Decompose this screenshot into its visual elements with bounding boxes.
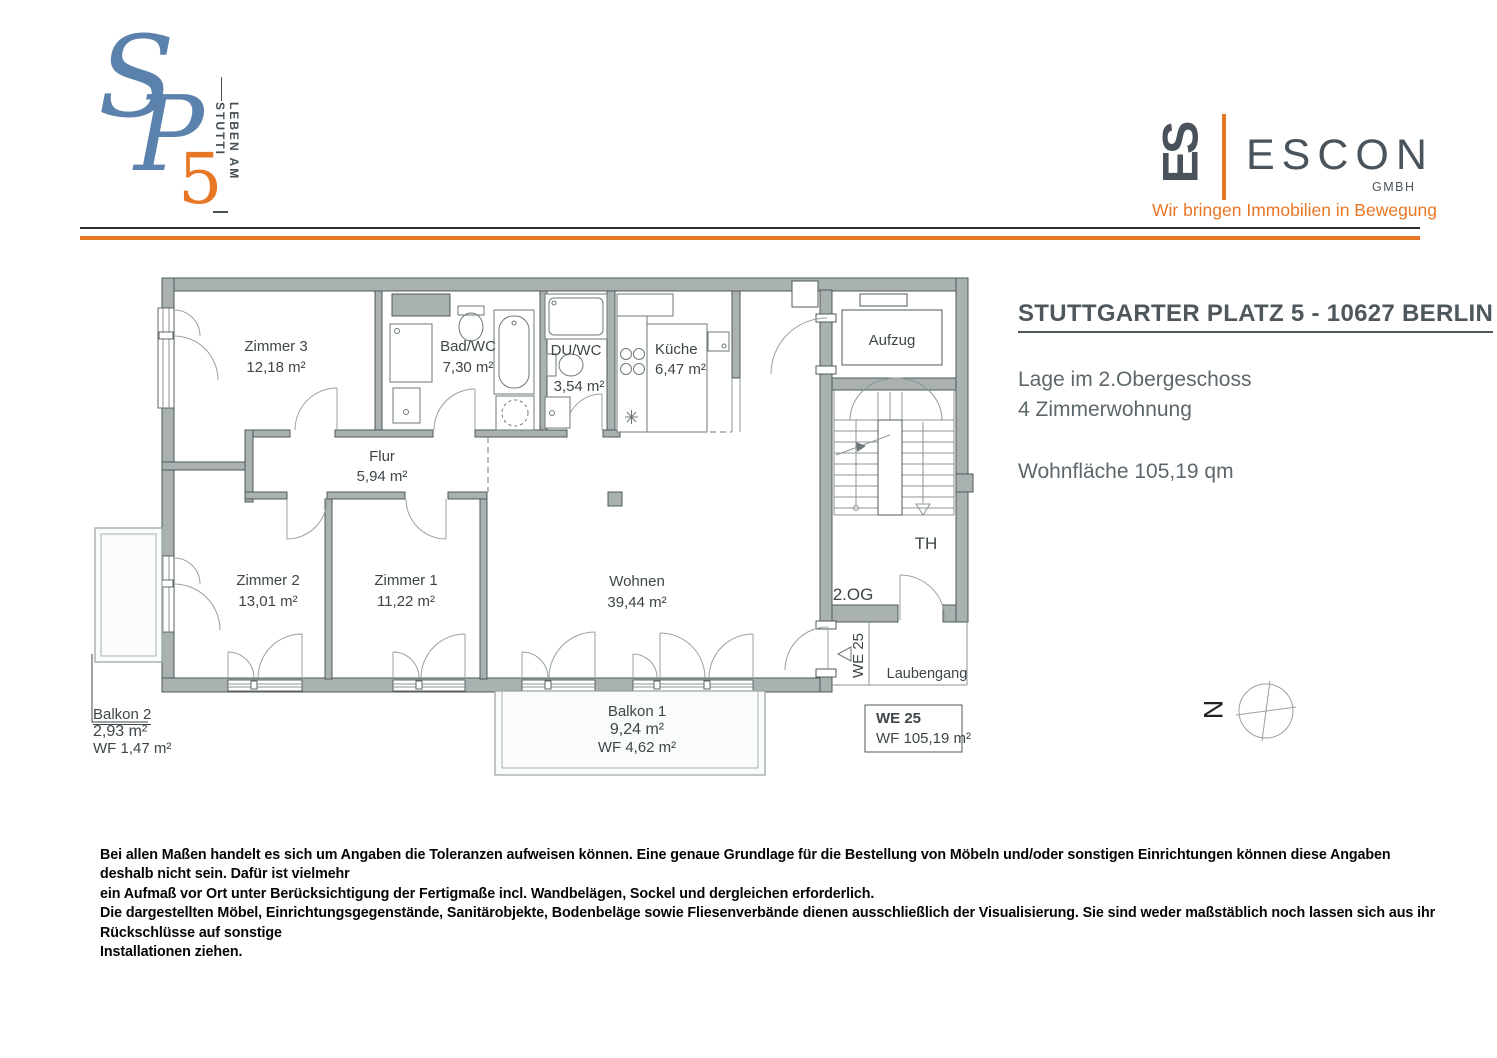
info-living-area: Wohnfläche 105,19 qm: [1018, 460, 1234, 484]
balcony-1-label: Balkon 1 9,24 m² WF 4,62 m²: [598, 703, 676, 757]
sp-logo-vertical-tagline: LEBEN AM STUTTI: [213, 102, 241, 218]
disclaimer-line: Installationen ziehen.: [100, 943, 1440, 962]
room-area-du-wc: 3,54 m²: [554, 376, 605, 397]
room-label-flur: Flur 5,94 m²: [357, 447, 408, 487]
label-elevator: Aufzug: [869, 330, 916, 351]
label-stairwell: TH: [915, 533, 938, 554]
sp-logo-rule-bottom: [213, 211, 228, 213]
room-label-du-wc: DU/WC: [551, 340, 602, 361]
label-gallery: Laubengang: [887, 664, 968, 685]
escon-monogram-icon: ES: [1148, 110, 1212, 198]
header-rule-dark: [80, 227, 1420, 229]
disclaimer-text: Bei allen Maßen handelt es sich um Angab…: [100, 846, 1440, 962]
compass-north-label: N: [1198, 700, 1229, 720]
floorplan-page: S P 5 LEBEN AM STUTTI ES ESCON GMBH Wir …: [0, 0, 1497, 1058]
unit-info-text: WE 25 WF 105,19 m²: [876, 709, 971, 749]
room-label-zimmer2: Zimmer 2 13,01 m²: [236, 570, 299, 612]
room-label-bad-wc: Bad/WC 7,30 m²: [440, 336, 496, 378]
room-label-zimmer1: Zimmer 1 11,22 m²: [374, 570, 437, 612]
label-floor: 2.OG: [833, 584, 874, 605]
label-unit-vertical: WE 25: [850, 630, 867, 678]
escon-tagline: Wir bringen Immobilien in Bewegung: [1152, 200, 1437, 221]
disclaimer-line: Die dargestellten Möbel, Einrichtungsgeg…: [100, 904, 1440, 943]
plan-labels: Zimmer 3 12,18 m² Bad/WC 7,30 m² DU/WC 3…: [90, 270, 975, 780]
escon-divider: [1222, 114, 1226, 200]
escon-legal-suffix: GMBH: [1372, 180, 1416, 194]
header-rule-orange: [80, 236, 1420, 240]
room-label-wohnen: Wohnen 39,44 m²: [607, 571, 666, 613]
balcony-2-label: Balkon 2 2,93 m² WF 1,47 m²: [93, 706, 171, 757]
page-title: STUTTGARTER PLATZ 5 - 10627 BERLIN: [1018, 300, 1493, 333]
info-location: Lage im 2.Obergeschoss: [1018, 368, 1251, 392]
info-type: 4 Zimmerwohnung: [1018, 398, 1192, 422]
escon-wordmark: ESCON: [1246, 134, 1434, 177]
room-label-kueche: Küche 6,47 m²: [655, 340, 706, 380]
disclaimer-line: Bei allen Maßen handelt es sich um Angab…: [100, 846, 1440, 885]
disclaimer-line: ein Aufmaß vor Ort unter Berücksichtigun…: [100, 885, 1440, 904]
sp-logo-rule-top: [221, 77, 222, 101]
room-label-zimmer3: Zimmer 3 12,18 m²: [244, 336, 307, 378]
